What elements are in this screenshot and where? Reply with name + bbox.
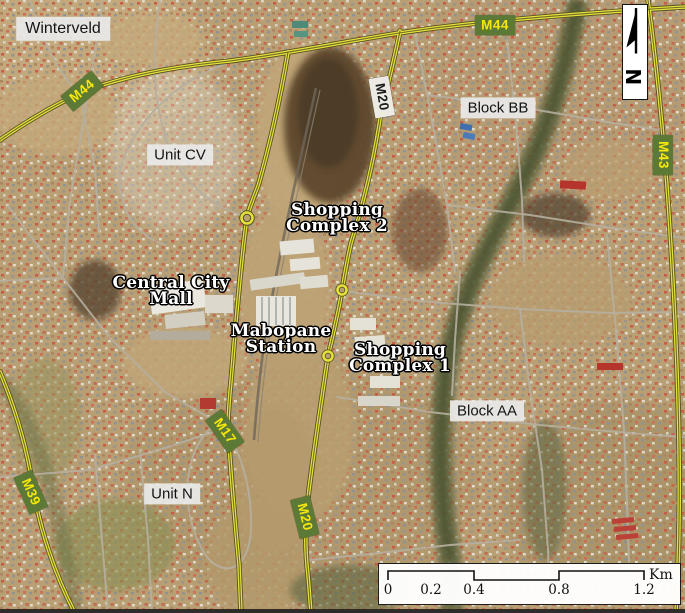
scale-tick-1-2: 1.2 [633,584,654,598]
satellite-basemap [0,0,685,613]
label-line: Mall [112,291,229,307]
map-bottom-edge [0,609,685,613]
label-line: Complex 2 [286,218,388,234]
label-winterveld: Winterveld [16,17,110,41]
label-mabopane-station: Mabopane Station [231,323,332,355]
label-block-bb: Block BB [461,97,536,118]
label-line: Complex 1 [349,358,451,374]
north-arrow-n: N [623,68,646,85]
scale-tick-0-2: 0.2 [420,584,441,598]
label-central-city-mall: Central City Mall [112,275,229,307]
scale-tick-0: 0 [384,584,393,598]
label-shopping-complex-2: Shopping Complex 2 [286,202,388,234]
scale-unit: Km [649,568,673,582]
label-block-aa: Block AA [450,400,524,421]
north-arrow-icon: N [623,5,647,99]
north-arrow: N [622,4,648,100]
scale-bar: 0 0.2 0.4 0.8 1.2 Km [378,563,681,605]
label-unit-cv: Unit CV [147,144,213,165]
label-line: Station [231,339,332,355]
road-shield-m43: M43 [653,135,673,175]
road-shield-m44-east: M44 [475,15,515,35]
scale-tick-0-8: 0.8 [548,584,569,598]
label-unit-n: Unit N [144,483,200,504]
scale-tick-0-4: 0.4 [463,584,484,598]
label-shopping-complex-1: Shopping Complex 1 [349,342,451,374]
map-figure: Winterveld Unit CV Block BB Block AA Uni… [0,0,685,613]
